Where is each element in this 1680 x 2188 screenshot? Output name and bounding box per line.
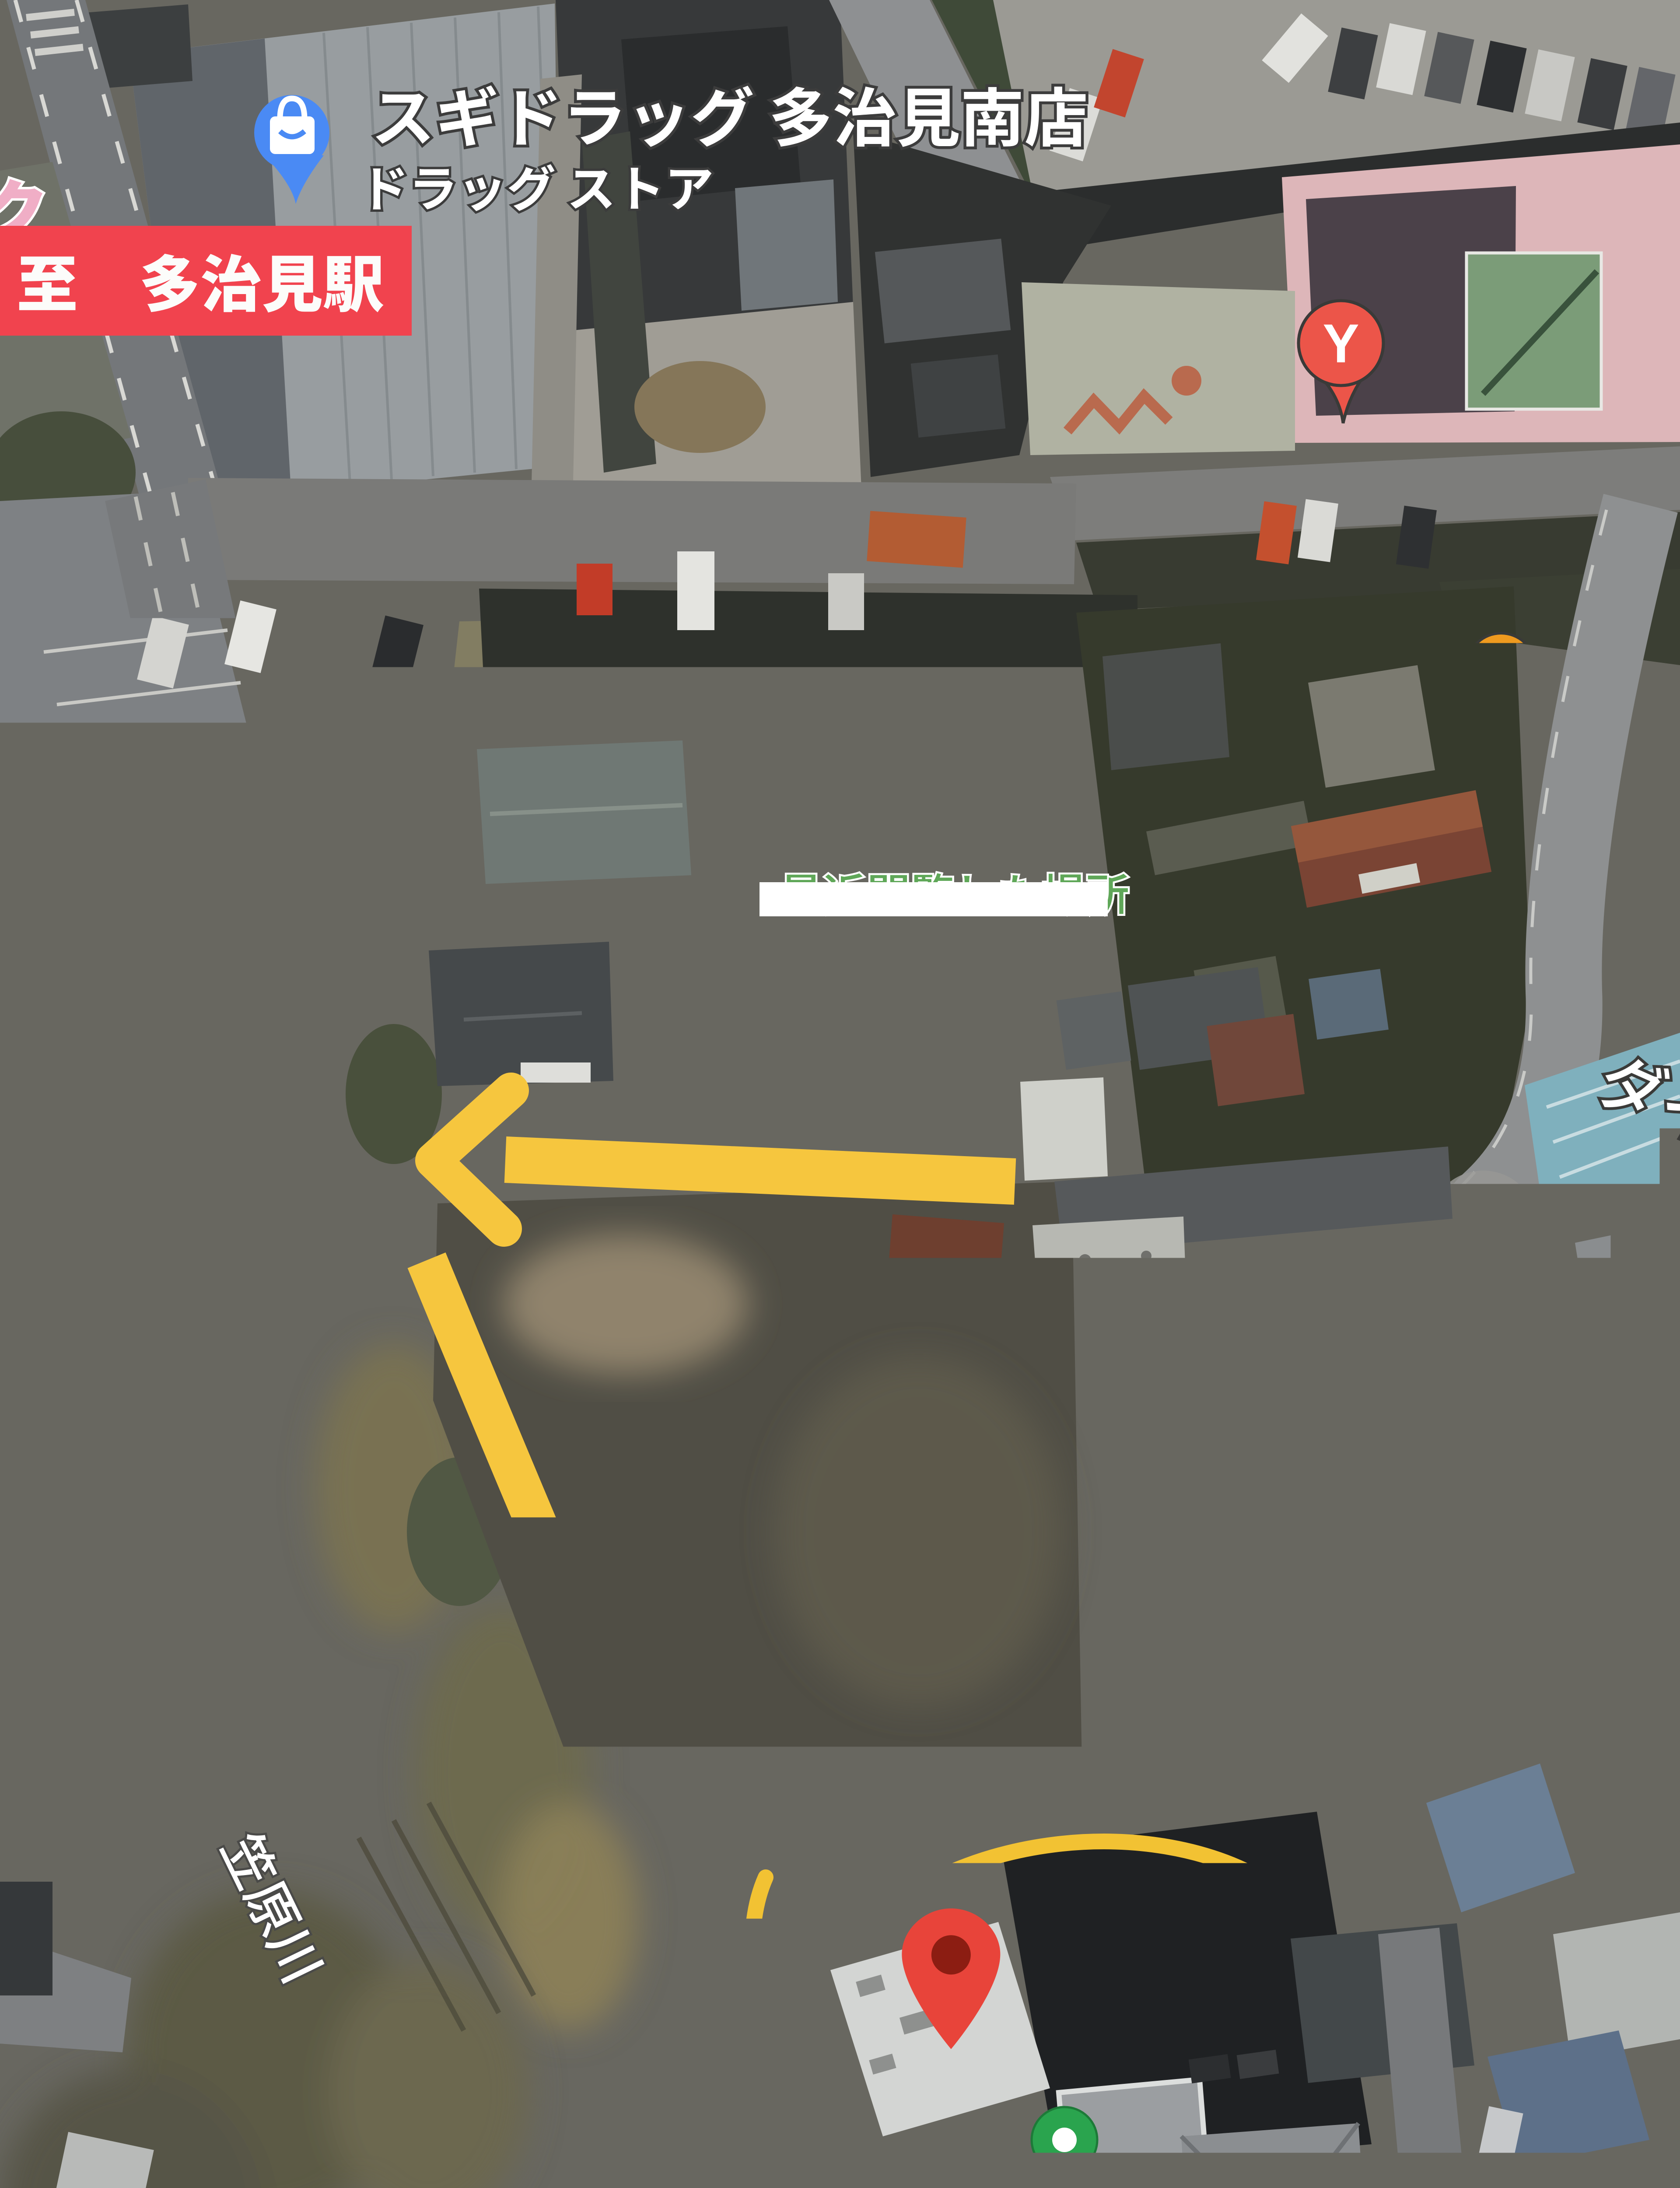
svg-text:Y: Y: [1323, 313, 1359, 374]
svg-text:13: 13: [814, 2131, 858, 2176]
svg-text:NEMM eyelash/: NEMM eyelash/: [1010, 1905, 1356, 1960]
